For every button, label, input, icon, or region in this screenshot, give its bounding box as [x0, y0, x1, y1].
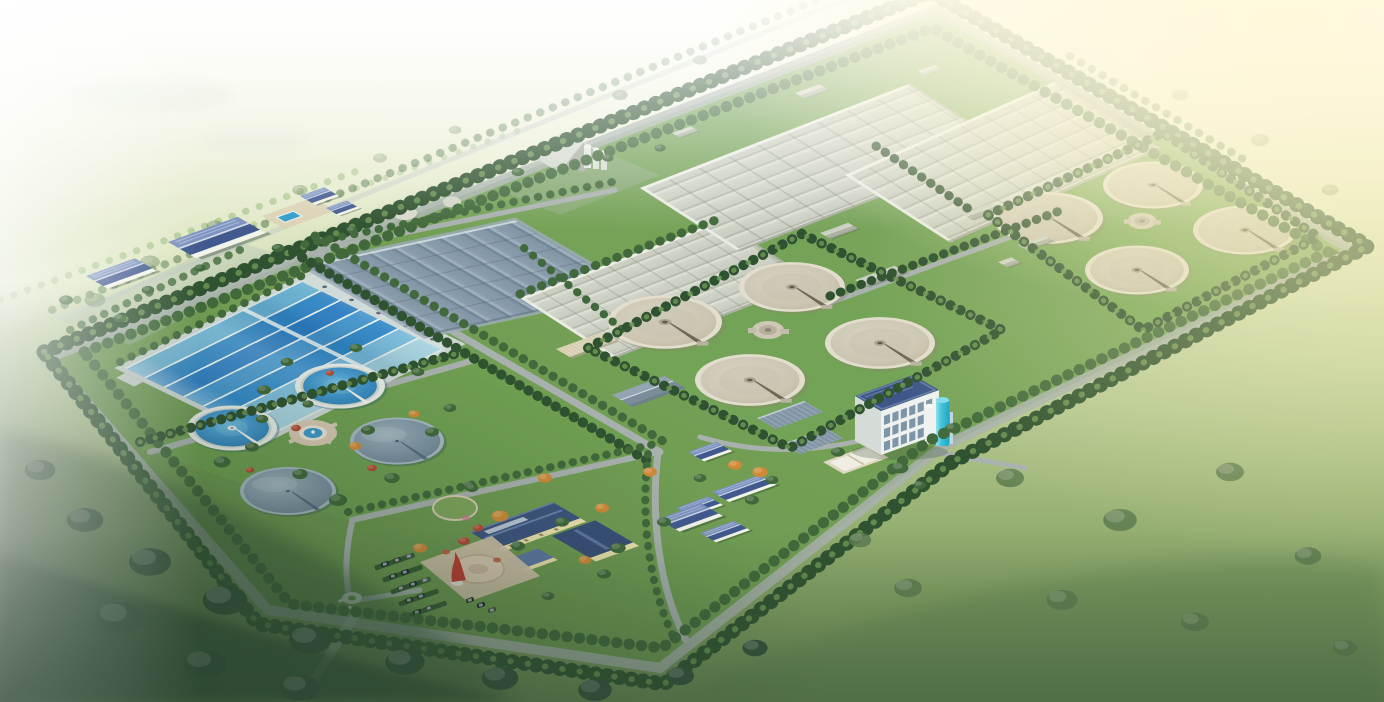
aerial-rendering-stage [0, 0, 1384, 702]
atmosphere-overlays [0, 0, 1384, 702]
treatment-plant-rendering [0, 0, 1384, 702]
bottom-shade [0, 530, 1384, 702]
